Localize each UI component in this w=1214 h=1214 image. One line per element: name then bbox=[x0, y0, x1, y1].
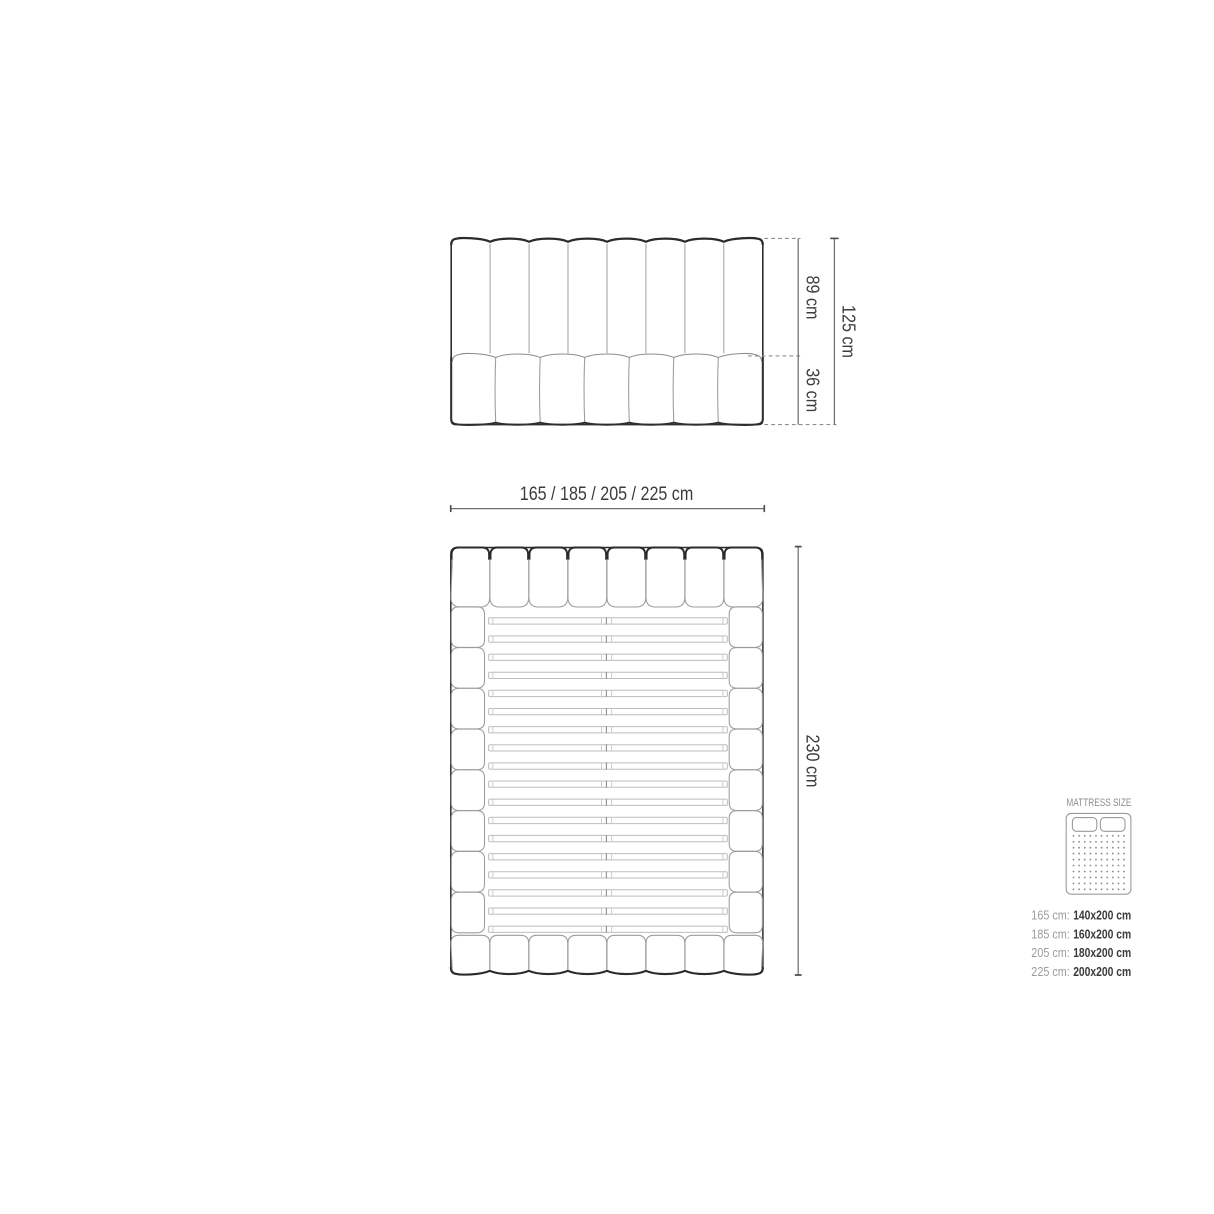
svg-text:165 / 185 / 205 / 225 cm: 165 / 185 / 205 / 225 cm bbox=[520, 483, 694, 505]
svg-text:225 cm:: 225 cm: bbox=[1031, 964, 1070, 979]
svg-text:89 cm: 89 cm bbox=[802, 276, 822, 320]
svg-text:205 cm:: 205 cm: bbox=[1031, 945, 1070, 960]
svg-text:MATTRESS SIZE: MATTRESS SIZE bbox=[1066, 797, 1131, 809]
svg-text:160x200 cm: 160x200 cm bbox=[1073, 926, 1131, 941]
svg-text:200x200 cm: 200x200 cm bbox=[1073, 964, 1131, 979]
svg-text:125 cm: 125 cm bbox=[839, 305, 859, 358]
svg-text:180x200 cm: 180x200 cm bbox=[1073, 945, 1131, 960]
svg-text:185 cm:: 185 cm: bbox=[1031, 926, 1070, 941]
svg-text:165 cm:: 165 cm: bbox=[1031, 907, 1070, 922]
svg-text:36 cm: 36 cm bbox=[802, 368, 822, 412]
svg-text:230 cm: 230 cm bbox=[803, 735, 823, 788]
svg-text:140x200 cm: 140x200 cm bbox=[1073, 907, 1131, 922]
